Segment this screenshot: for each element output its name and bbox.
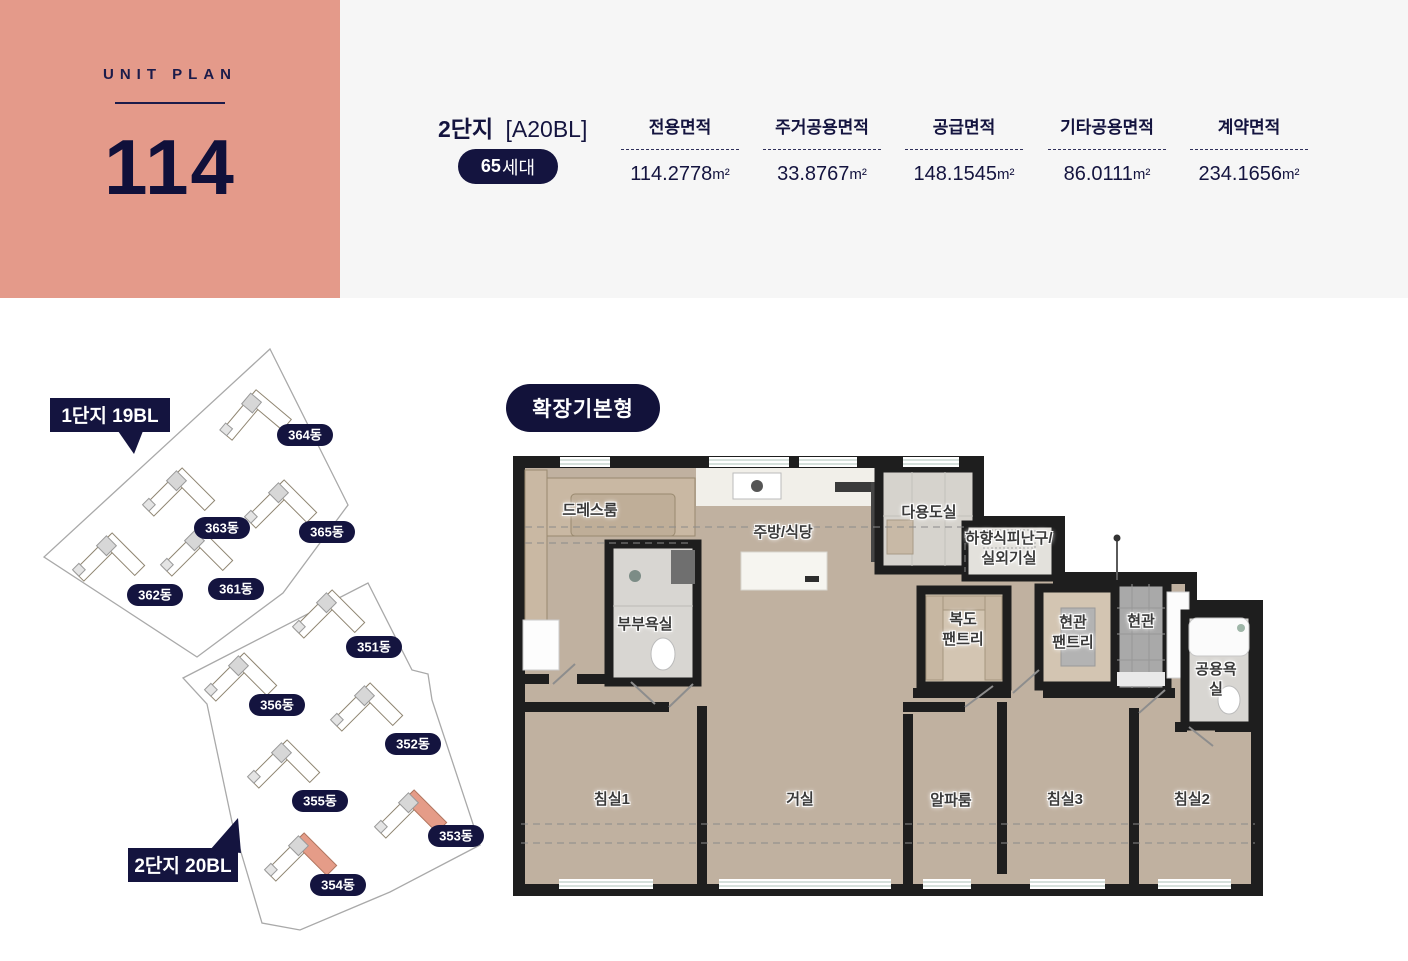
site-plan: 364동 363동 365동 362동 361동 351동 356동 xyxy=(30,340,500,950)
area-col-supply: 공급면적 148.1545m² xyxy=(884,113,1044,186)
sink-drain-icon xyxy=(751,480,763,492)
wall xyxy=(1043,688,1175,698)
dashed-divider xyxy=(905,149,1023,150)
toilet-icon xyxy=(651,638,675,670)
room-label-bedroom1: 침실1 xyxy=(594,790,630,810)
wall xyxy=(519,702,669,712)
floor-plan: 드레스룸 주방/식당 다용도실 하향식피난구/ 실외기실 부부욕실 복도 팬트리… xyxy=(513,456,1263,896)
main-content: 364동 363동 365동 362동 361동 351동 356동 xyxy=(0,298,1408,961)
building-pill-352: 352동 xyxy=(385,733,441,755)
area-col-other-common: 기타공용면적 86.0111m² xyxy=(1027,113,1187,186)
room-label-corridor-pantry: 복도 팬트리 xyxy=(942,610,983,651)
bathtub-icon xyxy=(1189,618,1249,656)
room-label-entrance-pantry: 현관 팬트리 xyxy=(1052,613,1093,654)
svg-text:351동: 351동 xyxy=(357,640,391,655)
room-label-common-bath: 공용욕실 xyxy=(1193,660,1240,701)
room-label-kitchen-dining: 주방/식당 xyxy=(753,523,812,543)
bath-closet-dark xyxy=(671,550,695,584)
building-pill-361: 361동 xyxy=(208,578,264,600)
svg-text:364동: 364동 xyxy=(288,428,322,443)
wall xyxy=(1175,722,1187,732)
complex-name: 2단지 xyxy=(438,116,493,142)
district1-tag: 1단지 19BL xyxy=(50,398,170,454)
unit-info-header: 2단지 [A20BL] 65 세대 전용면적 114.2778m² 주거공용면적… xyxy=(340,0,1408,298)
room-label-alpha-room: 알파룸 xyxy=(930,791,971,811)
area-col-contract: 계약면적 234.1656m² xyxy=(1169,113,1329,186)
svg-text:362동: 362동 xyxy=(138,588,172,603)
households-badge: 65 세대 xyxy=(458,149,558,184)
stair-mark-head xyxy=(1114,535,1121,542)
room-label-master-bath: 부부욕실 xyxy=(617,615,672,635)
dashed-divider xyxy=(763,149,881,150)
svg-text:352동: 352동 xyxy=(396,737,430,752)
wall xyxy=(913,688,1011,698)
svg-text:2단지 20BL: 2단지 20BL xyxy=(134,855,232,877)
unit-plan-label: UNIT PLAN xyxy=(0,66,340,83)
wall xyxy=(903,702,965,712)
wall xyxy=(577,674,609,684)
pantry-shelf xyxy=(985,596,1002,680)
hall-closet xyxy=(523,620,559,670)
area-col-exclusive: 전용면적 114.2778m² xyxy=(600,113,760,186)
households-count: 65 xyxy=(481,156,501,177)
svg-text:353동: 353동 xyxy=(439,829,473,844)
dashed-divider xyxy=(621,149,739,150)
svg-text:356동: 356동 xyxy=(260,698,294,713)
washer-icon xyxy=(887,520,913,554)
households-unit: 세대 xyxy=(502,154,535,180)
wall xyxy=(519,674,549,684)
room-label-bedroom2: 침실2 xyxy=(1174,790,1210,810)
shower-icon xyxy=(629,570,641,582)
building-pill-351: 351동 xyxy=(346,636,402,658)
wall xyxy=(997,702,1007,874)
room-label-dressroom: 드레스룸 xyxy=(562,501,617,521)
complex-title: 2단지 [A20BL] xyxy=(438,110,587,144)
room-label-utility: 다용도실 xyxy=(901,503,956,523)
unit-plan-hero: UNIT PLAN 114 xyxy=(0,0,340,298)
building-pill-365: 365동 xyxy=(299,521,355,543)
building-pill-354: 354동 xyxy=(310,874,366,896)
svg-text:363동: 363동 xyxy=(205,521,239,536)
kitchen-island xyxy=(741,552,827,590)
wall xyxy=(903,714,913,890)
room-label-escape-hatch: 하향식피난구/ 실외기실 xyxy=(966,529,1053,570)
plan-type-pill: 확장기본형 xyxy=(506,384,660,432)
dressroom-closet-left xyxy=(525,470,547,638)
tap-icon xyxy=(1237,624,1245,632)
svg-text:355동: 355동 xyxy=(303,794,337,809)
area-col-residential-common: 주거공용면적 33.8767m² xyxy=(742,113,902,186)
wall xyxy=(1129,708,1139,890)
hero-divider xyxy=(115,102,225,104)
svg-text:361동: 361동 xyxy=(219,582,253,597)
room-label-living: 거실 xyxy=(786,790,814,810)
room-label-entrance: 현관 xyxy=(1127,612,1155,632)
island-sink xyxy=(805,576,819,582)
pantry-shelf xyxy=(926,596,943,680)
unit-type-number: 114 xyxy=(0,122,340,213)
svg-text:365동: 365동 xyxy=(310,525,344,540)
dashed-divider xyxy=(1048,149,1166,150)
wall xyxy=(1215,722,1257,732)
room-label-bedroom3: 침실3 xyxy=(1047,790,1083,810)
district2-tag: 2단지 20BL xyxy=(128,818,241,882)
building-pill-363: 363동 xyxy=(194,517,250,539)
svg-text:354동: 354동 xyxy=(321,878,355,893)
wall xyxy=(697,706,707,890)
plan-type-label: 확장기본형 xyxy=(532,393,634,423)
building-pill-356: 356동 xyxy=(249,694,305,716)
svg-text:1단지 19BL: 1단지 19BL xyxy=(61,405,159,427)
entrance-mat xyxy=(1117,672,1165,686)
cooktop xyxy=(835,482,875,492)
block-code: [A20BL] xyxy=(506,116,588,142)
dashed-divider xyxy=(1190,149,1308,150)
building-pill-353: 353동 xyxy=(428,825,484,847)
building-pill-364: 364동 xyxy=(277,424,333,446)
pantry-shelf xyxy=(943,596,985,610)
building-pill-362: 362동 xyxy=(127,584,183,606)
building-pill-355: 355동 xyxy=(292,790,348,812)
